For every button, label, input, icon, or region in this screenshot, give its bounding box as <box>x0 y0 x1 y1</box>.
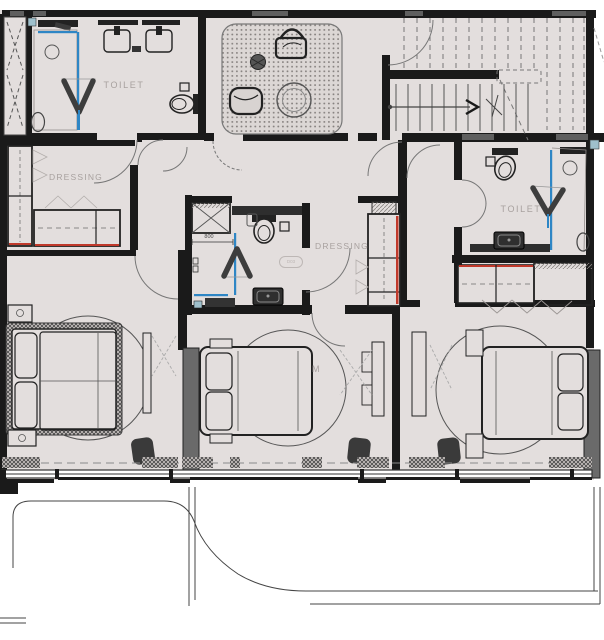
floor-plan-drawing <box>0 0 604 640</box>
room-label-toilet-left: TOILET <box>96 80 152 90</box>
sink-icon <box>146 26 172 52</box>
nightstand <box>466 434 483 458</box>
room-label-dressing-right: DRESSING <box>306 241 378 251</box>
sink-icon <box>104 26 130 52</box>
duct-shaft <box>4 17 26 135</box>
tv-unit <box>412 332 426 416</box>
room-label-bedroom-partial: M <box>312 364 320 374</box>
lounge-rug <box>222 24 342 134</box>
shower-glass <box>234 233 236 295</box>
bed-icon <box>200 347 312 435</box>
bed-icon <box>482 347 588 439</box>
tv-unit <box>372 342 384 416</box>
nightstand <box>8 305 32 322</box>
nightstand <box>210 434 232 443</box>
dresser <box>143 333 151 413</box>
shower-glass <box>38 31 77 33</box>
shower-glass <box>550 150 552 250</box>
room-label-toilet-right: TOILET <box>493 204 549 214</box>
room-label-dressing-left: DRESSING <box>40 172 112 182</box>
bed-icon <box>6 323 122 435</box>
nightstand <box>466 330 483 356</box>
ball-icon <box>251 55 266 70</box>
floor-plan: TOILET DRESSING DRESSING TOILET M 800 D0… <box>0 0 604 640</box>
washer-cabinet-icon <box>192 203 230 233</box>
armchair-icon <box>230 88 262 114</box>
door-tag-pill: D03 <box>279 256 303 268</box>
terrace-outline <box>0 487 600 623</box>
nightstand <box>8 430 36 446</box>
nightstand <box>210 339 232 348</box>
dimension-label-800: 800 <box>198 234 220 240</box>
